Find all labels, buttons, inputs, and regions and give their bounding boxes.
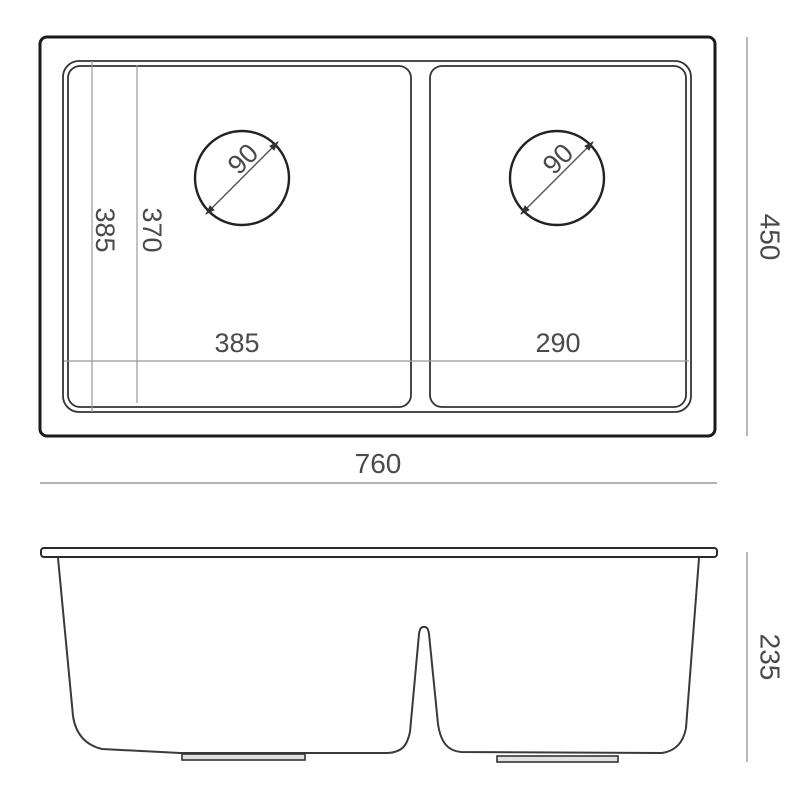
side-view-body-profile (58, 558, 699, 753)
side-view-rim-bar (41, 548, 717, 557)
inner-length-label: 385 (90, 207, 120, 252)
top-view: 385 370 90 90 385 290 450 760 (40, 37, 786, 483)
right-bowl-width-label: 290 (535, 328, 580, 358)
sink-technical-drawing: 385 370 90 90 385 290 450 760 (0, 0, 800, 794)
side-view: 235 (41, 548, 786, 762)
left-drain-diameter-label: 90 (222, 138, 264, 180)
drawing-canvas: 385 370 90 90 385 290 450 760 (0, 0, 800, 794)
left-foot-strip (182, 754, 305, 760)
right-foot-strip (497, 756, 618, 762)
overall-depth-label: 450 (755, 214, 786, 261)
bowl-depth-label: 235 (755, 634, 786, 681)
overall-width-label: 760 (355, 448, 402, 479)
left-bowl-width-label: 385 (214, 328, 259, 358)
right-drain-diameter-label: 90 (537, 138, 579, 180)
bowl-inner-length-label: 370 (137, 207, 167, 252)
